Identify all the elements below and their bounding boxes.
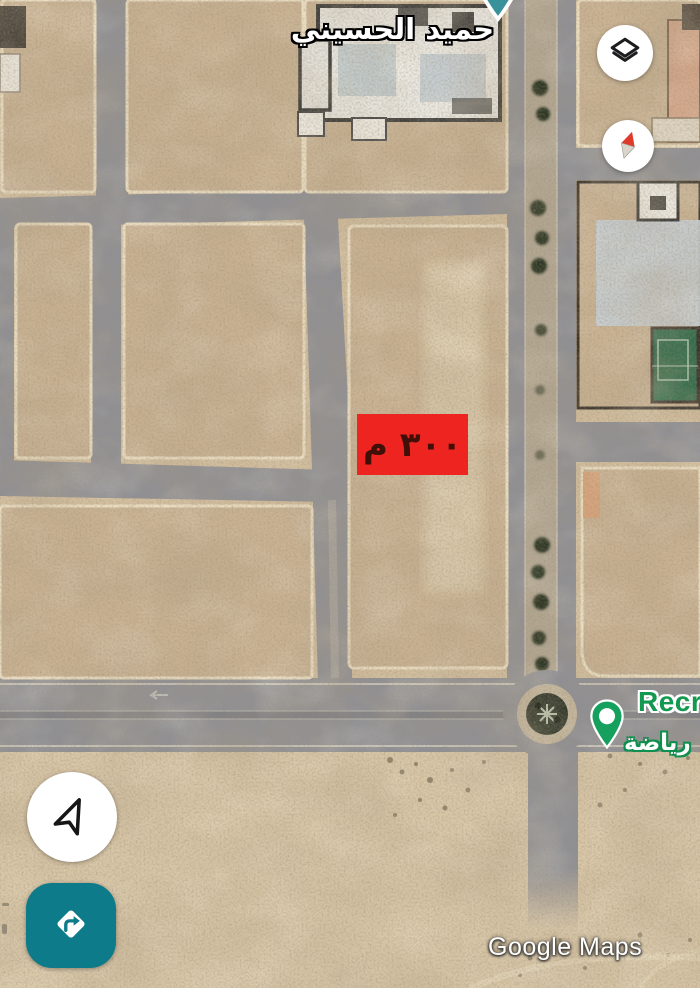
navigation-arrow-icon — [47, 791, 97, 844]
turn-right-arrow-icon — [48, 901, 94, 950]
layers-icon — [609, 36, 641, 71]
edge-artifact — [2, 924, 7, 934]
google-maps-watermark: Google Maps — [488, 933, 642, 962]
poi-marker: Recr رياضة — [588, 698, 700, 768]
compass-needle-icon — [612, 129, 644, 164]
layers-button[interactable] — [597, 25, 653, 81]
google-maps-satellite-view[interactable]: حميد الحسيني ٣٠٠ م Re — [0, 0, 700, 988]
area-measurement-label: ٣٠٠ م — [357, 414, 468, 475]
poi-name-label: Recr — [638, 686, 700, 718]
my-location-button[interactable] — [27, 772, 117, 862]
edge-artifact — [2, 903, 9, 906]
place-label: حميد الحسيني — [275, 12, 510, 46]
poi-pin-icon[interactable] — [588, 698, 626, 755]
compass-button[interactable] — [602, 120, 654, 172]
directions-button[interactable] — [26, 883, 116, 968]
poi-arabic-label: رياضة — [624, 730, 691, 756]
